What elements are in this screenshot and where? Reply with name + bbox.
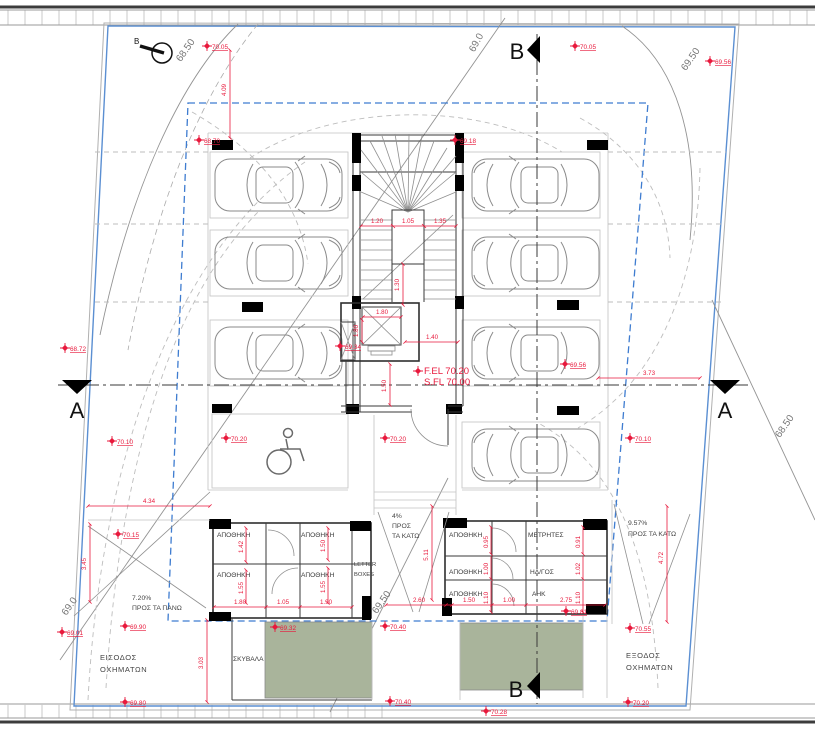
planters — [265, 616, 607, 700]
floor-plan-drawing: 68.50 69.0 69.50 68.50 69.0 69.50 — [0, 0, 815, 739]
road-top — [0, 7, 815, 25]
dim-label: 3.45 — [81, 557, 88, 570]
dim-label: 1.55 — [238, 581, 245, 594]
vehicle-exit-label: ΕΞΟΔΟΣ — [626, 651, 660, 660]
dim-label: 1.10 — [575, 591, 582, 604]
dim-label: 1.05 — [277, 599, 290, 606]
spot-level: 70.10 — [117, 439, 133, 446]
room-label-garbage: ΣΚΥΒΑΛΑ — [233, 656, 264, 663]
spot-level: 70.10 — [635, 436, 651, 443]
stair-treads — [361, 134, 456, 299]
dim-label: 1.55 — [320, 580, 327, 593]
spot-level: 70.05 — [212, 44, 228, 51]
room-label-storage: ΑΠΟΘΗΚΗ — [449, 569, 483, 576]
spot-level: 69.81 — [571, 609, 587, 616]
spot-level: 69.56 — [715, 59, 731, 66]
room-label-storage: ΑΠΟΘΗΚΗ — [301, 572, 335, 579]
dim-label: 1.00 — [483, 562, 490, 575]
spot-level: 69.34 — [345, 344, 361, 351]
room-label-letterboxes: BOXES — [354, 572, 374, 578]
spot-level: 69.32 — [280, 625, 296, 632]
vehicle-entrance-label: ΟΧΗΜΑΤΩΝ — [100, 665, 147, 674]
dim-label: 4.72 — [658, 551, 665, 564]
ramp-label-left: 7.20% — [132, 595, 151, 602]
spot-level: 70.20 — [390, 436, 406, 443]
dim-label: 1.10 — [483, 591, 490, 604]
dim-label: 2.75 — [560, 597, 573, 604]
ramp-label-right: ΠΡΟΣ ΤΑ ΚΑΤΩ — [628, 531, 676, 538]
ramp-label-center: ΠΡΟΣ — [392, 523, 411, 530]
spot-level: 68.72 — [70, 346, 86, 353]
dim-label: 5.11 — [423, 549, 430, 561]
dim-label: 1.20 — [371, 218, 384, 225]
dim-label: 3.03 — [198, 656, 205, 669]
section-letter-b: B — [509, 677, 524, 702]
finished-level-label: F.EL 70.20 — [424, 366, 469, 377]
ramp-label-center: 4% — [392, 513, 402, 520]
dim-label: 1.50 — [463, 597, 476, 604]
structural-columns — [212, 140, 608, 415]
spot-level: 70.55 — [635, 626, 651, 633]
spot-level: 69.90 — [130, 624, 146, 631]
spot-level: 70.20 — [633, 700, 649, 707]
vehicle-entrance-label: ΕΙΣΟΔΟΣ — [100, 653, 137, 662]
dim-label: 1.50 — [381, 379, 388, 392]
dim-label: 4.34 — [143, 498, 156, 505]
dim-label: 4.09 — [221, 83, 228, 96]
room-label-eac: ΑΗΚ — [532, 591, 546, 598]
dim-label: 1.90 — [320, 599, 333, 606]
spot-level: 70.15 — [123, 532, 139, 539]
dim-label: 3.73 — [643, 370, 656, 377]
dim-label: 1.00 — [503, 597, 516, 604]
spot-level: 70.40 — [395, 699, 411, 706]
room-label-storage: ΑΠΟΘΗΚΗ — [449, 532, 483, 539]
contour-label: 68.50 — [174, 37, 198, 64]
ramp-label-center: ΤΑ ΚΑΤΩ — [392, 533, 419, 540]
dim-label: 1.30 — [394, 278, 401, 291]
spot-level: 70.40 — [390, 624, 406, 631]
entrance-walkway — [374, 415, 456, 515]
spot-level: 70.05 — [580, 44, 596, 51]
spot-level: 70.20 — [231, 436, 247, 443]
ramp-label-right: 9.57% — [628, 520, 647, 527]
spot-level: 70.28 — [491, 709, 507, 716]
dim-label: 1.80 — [353, 324, 360, 337]
dim-label: 1.35 — [434, 218, 447, 225]
room-label-storage: ΑΠΟΘΗΚΗ — [301, 532, 335, 539]
spot-levels: 70.05 70.05 69.56 68.70 69.18 68.72 70.1… — [57, 41, 731, 716]
contour-label: 69.0 — [467, 31, 486, 54]
spot-level: 68.70 — [204, 138, 220, 145]
room-label-storage: ΑΠΟΘΗΚΗ — [217, 572, 251, 579]
dim-label: 0.91 — [575, 535, 582, 548]
room-label-letterboxes: LETTER — [354, 562, 376, 568]
spot-level: 69.01 — [67, 630, 83, 637]
contour-label: 69.50 — [679, 46, 703, 73]
planter-left — [265, 622, 372, 698]
floor-plan-page: 68.50 69.0 69.50 68.50 69.0 69.50 — [0, 0, 815, 739]
entrance-door-swing — [411, 409, 448, 446]
spot-level: 69.56 — [570, 362, 586, 369]
dim-label: 1.42 — [238, 540, 245, 553]
spot-level: 69.18 — [460, 138, 476, 145]
section-letter-a: A — [718, 398, 733, 423]
north-arrow: B — [134, 37, 172, 63]
dim-label: 1.40 — [426, 334, 439, 341]
section-a-marker — [710, 380, 740, 394]
dim-label: 1.80 — [376, 309, 389, 316]
north-label: B — [134, 37, 139, 46]
structural-level-label: S.FL 70.00 — [424, 377, 470, 388]
dim-label: 1.05 — [402, 218, 415, 225]
dim-label: 1.50 — [320, 539, 327, 552]
dim-label: 1.80 — [234, 599, 247, 606]
section-letter-a: A — [70, 398, 85, 423]
ramp-label-left: ΠΡΟΣ ΤΑ ΠΑΝΩ — [132, 605, 182, 612]
contour-label: 69.0 — [60, 595, 80, 618]
section-a-marker — [62, 380, 92, 394]
vehicle-exit-label: ΟΧΗΜΑΤΩΝ — [626, 663, 673, 672]
room-label-electrical: ΗΛ/ΓΟΣ — [530, 569, 554, 576]
room-label-meters: ΜΕΤΡΗΤΕΣ — [528, 532, 564, 539]
section-letter-b: B — [510, 39, 525, 64]
dim-label: 2.60 — [413, 597, 426, 604]
contour-label: 68.50 — [773, 413, 797, 440]
dim-label: 0.95 — [483, 535, 490, 548]
spot-level: 69.80 — [130, 700, 146, 707]
room-label-storage: ΑΠΟΘΗΚΗ — [217, 532, 251, 539]
dim-label: 1.02 — [575, 562, 582, 575]
section-b-marker — [527, 36, 540, 63]
